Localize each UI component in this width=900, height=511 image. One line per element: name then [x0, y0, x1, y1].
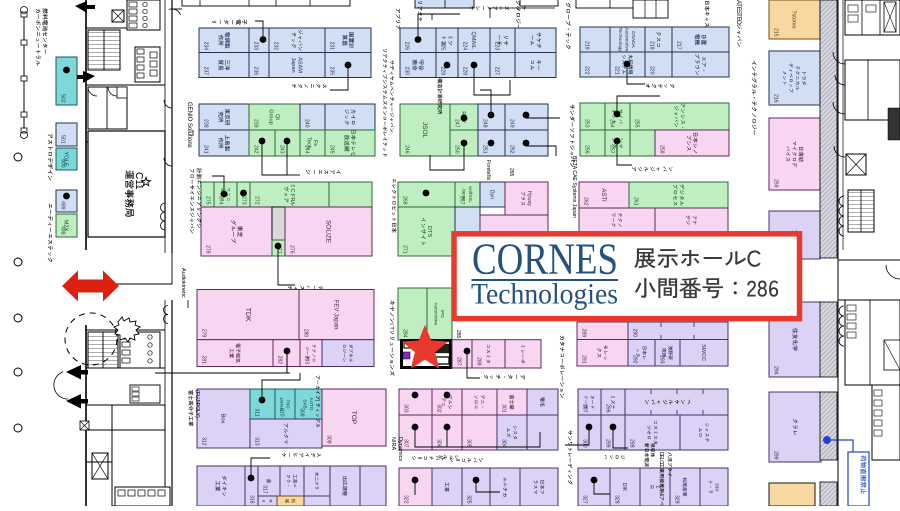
svg-text:261: 261: [633, 197, 639, 206]
svg-text:SWCC: SWCC: [700, 344, 706, 361]
svg-text:O: O: [658, 460, 664, 464]
svg-text:Group: Group: [267, 109, 273, 125]
svg-text:246: 246: [404, 145, 410, 154]
svg-text:262: 262: [583, 197, 589, 206]
svg-text:wolfSSL: wolfSSL: [468, 186, 473, 203]
svg-text:BETA CAE Systems Japan: BETA CAE Systems Japan: [571, 156, 577, 218]
svg-text:310: 310: [279, 408, 285, 417]
svg-text:258: 258: [659, 145, 665, 154]
svg-text:299: 299: [773, 451, 779, 460]
svg-text:234: 234: [203, 42, 209, 51]
svg-text:224: 224: [462, 42, 468, 51]
svg-text:285: 285: [455, 330, 461, 339]
svg-text:248: 248: [482, 119, 488, 128]
svg-text:ASAM: ASAM: [296, 57, 302, 73]
svg-text:274: 274: [218, 196, 224, 205]
svg-text:Fs: Fs: [312, 140, 318, 146]
svg-text:300: 300: [582, 439, 588, 448]
svg-text:DSADA: DSADA: [630, 31, 636, 48]
svg-text:DTS: DTS: [426, 226, 432, 238]
svg-text:IPG: IPG: [440, 310, 445, 318]
svg-text:271: 271: [402, 245, 408, 254]
svg-text:Technology: Technology: [617, 27, 623, 52]
svg-text:327: 327: [582, 495, 588, 504]
svg-text:QMAIL: QMAIL: [470, 32, 476, 49]
svg-text:227: 227: [494, 67, 500, 76]
svg-text:256: 256: [584, 145, 590, 154]
svg-text:306: 306: [436, 439, 442, 448]
svg-text:Dynamics: Dynamics: [397, 437, 403, 461]
svg-text:239: 239: [253, 119, 259, 128]
svg-text:294: 294: [773, 366, 779, 375]
svg-text:Japan: Japan: [290, 57, 296, 72]
svg-text:Qt: Qt: [274, 114, 280, 120]
svg-text:282: 282: [277, 356, 283, 365]
svg-text:Foretellix: Foretellix: [485, 160, 491, 181]
svg-text:249: 249: [509, 119, 515, 128]
svg-text:Technologies: Technologies: [471, 278, 618, 311]
svg-text:O: O: [735, 20, 741, 25]
svg-text:502: 502: [60, 94, 66, 103]
svg-text:254: 254: [609, 119, 615, 128]
svg-text:FEV Japan: FEV Japan: [333, 300, 339, 330]
svg-text:216: 216: [773, 94, 779, 103]
svg-text:330: 330: [713, 483, 719, 491]
svg-text:500: 500: [60, 159, 66, 168]
svg-text:279: 279: [201, 329, 207, 338]
svg-text:R: R: [648, 485, 654, 489]
svg-text:242: 242: [253, 145, 259, 154]
svg-text:230: 230: [404, 67, 410, 76]
svg-text:220: 220: [649, 66, 655, 75]
svg-text:280: 280: [303, 329, 309, 338]
svg-text:291: 291: [581, 355, 587, 364]
svg-text:GENIO Solutions: GENIO Solutions: [186, 102, 192, 148]
svg-text:Dyn: Dyn: [489, 190, 495, 199]
svg-text:240: 240: [304, 119, 310, 128]
svg-text:265: 265: [508, 168, 514, 177]
svg-text:290: 290: [632, 329, 638, 338]
svg-text:309: 309: [299, 408, 305, 417]
svg-text:268: 268: [402, 196, 408, 205]
svg-text:289: 289: [581, 329, 587, 338]
svg-text:CORNES: CORNES: [472, 235, 618, 284]
svg-text:501: 501: [60, 135, 66, 144]
svg-text:499: 499: [60, 201, 66, 210]
svg-text:231: 231: [329, 42, 335, 51]
svg-text:284: 284: [402, 329, 408, 338]
svg-text:287: 287: [456, 357, 462, 366]
svg-text:C: C: [289, 189, 295, 193]
svg-text:303: 303: [403, 404, 409, 413]
svg-text:237: 237: [203, 67, 209, 76]
svg-text:275: 275: [205, 196, 211, 205]
svg-text:244: 244: [304, 145, 310, 154]
svg-text:255: 255: [634, 119, 640, 128]
svg-text:267: 267: [459, 196, 465, 205]
svg-text:292: 292: [632, 355, 638, 364]
svg-text:317: 317: [262, 485, 268, 494]
svg-text:243: 243: [279, 145, 285, 154]
svg-text:217: 217: [676, 41, 682, 50]
svg-text:247: 247: [454, 119, 460, 128]
svg-text:223: 223: [494, 42, 500, 51]
svg-text:229: 229: [440, 67, 446, 76]
svg-text:215: 215: [773, 28, 779, 37]
svg-text:235: 235: [329, 67, 335, 76]
svg-text:312: 312: [201, 437, 207, 446]
svg-text:297: 297: [582, 404, 588, 413]
svg-text:259: 259: [773, 179, 779, 188]
svg-text:Z: Z: [654, 485, 660, 488]
svg-text:TOP: TOP: [350, 411, 357, 424]
svg-text:221: 221: [614, 66, 620, 75]
svg-text:?stomo: ?stomo: [791, 10, 797, 28]
svg-text:278: 278: [205, 245, 211, 254]
svg-text:SOLIZE: SOLIZE: [325, 220, 332, 244]
svg-text:253: 253: [584, 119, 590, 128]
svg-text:AUTO: AUTO: [309, 398, 314, 411]
svg-text:252: 252: [509, 145, 515, 154]
svg-text:232: 232: [273, 42, 279, 51]
svg-text:226: 226: [404, 42, 410, 51]
svg-text:Audiokinetic: Audiokinetic: [180, 268, 186, 298]
svg-text:Automotive: Automotive: [624, 28, 630, 52]
svg-text:219: 219: [584, 41, 590, 50]
svg-text:302: 302: [436, 404, 442, 413]
svg-text:R: R: [289, 197, 295, 201]
svg-text:Hyway: Hyway: [526, 191, 532, 207]
svg-text:298: 298: [629, 439, 635, 448]
svg-text:251: 251: [482, 145, 488, 154]
svg-text:329: 329: [674, 495, 680, 504]
svg-text:272: 272: [254, 196, 260, 205]
svg-text:308: 308: [326, 435, 332, 444]
svg-text:313: 313: [254, 437, 260, 446]
svg-text:|: |: [314, 400, 320, 401]
svg-text:238: 238: [203, 119, 209, 128]
svg-text:Automotive: Automotive: [433, 303, 438, 326]
svg-text:228: 228: [462, 67, 468, 76]
svg-text:328: 328: [614, 495, 620, 504]
svg-text:245: 245: [329, 145, 335, 154]
svg-text:Box: Box: [220, 414, 226, 424]
svg-text:233: 233: [253, 42, 259, 51]
svg-text:222: 222: [584, 66, 590, 75]
svg-text:305: 305: [466, 439, 472, 448]
svg-text:DIK: DIK: [621, 483, 627, 492]
svg-text:T: T: [388, 326, 394, 330]
svg-text:498: 498: [60, 226, 66, 235]
svg-text:241: 241: [203, 145, 209, 154]
svg-text:236: 236: [253, 67, 259, 76]
svg-text:311: 311: [254, 409, 260, 417]
svg-text:257: 257: [609, 145, 615, 154]
svg-text:218: 218: [649, 41, 655, 50]
svg-text:276: 276: [289, 245, 295, 254]
svg-text:NIRA: NIRA: [390, 437, 396, 450]
svg-text:283: 283: [304, 356, 310, 365]
svg-text:322: 322: [403, 495, 409, 504]
svg-text:304: 304: [501, 439, 507, 448]
svg-text:293: 293: [659, 355, 665, 364]
svg-text:281: 281: [201, 356, 207, 365]
svg-text:273: 273: [241, 196, 247, 205]
svg-text:296: 296: [605, 404, 611, 413]
svg-text:301: 301: [501, 404, 507, 413]
svg-text:ASTI: ASTI: [600, 188, 606, 202]
svg-text:325: 325: [466, 495, 472, 504]
svg-text:299: 299: [605, 439, 611, 448]
svg-text:JSOL: JSOL: [421, 122, 428, 139]
svg-text:250: 250: [454, 145, 460, 154]
svg-text:TND: TND: [285, 399, 290, 408]
svg-text:316: 316: [249, 495, 255, 504]
svg-text:225: 225: [440, 42, 446, 51]
svg-text:(FUJIPOLY): (FUJIPOLY): [194, 390, 200, 418]
svg-text:TDK: TDK: [244, 308, 251, 322]
svg-text:288: 288: [476, 357, 482, 366]
